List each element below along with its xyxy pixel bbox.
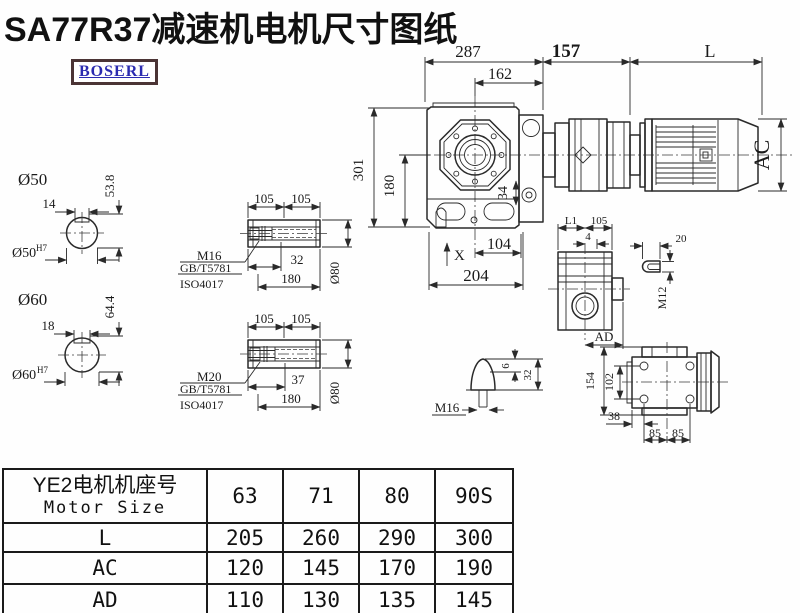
svg-text:105: 105 [254, 311, 274, 326]
cell-AD-90S: 145 [435, 584, 513, 613]
dim-53-8: 53.8 [89, 175, 123, 262]
svg-text:180: 180 [281, 271, 301, 286]
thread-callout-m16: M16 GB/T5781 ISO4017 [178, 241, 259, 291]
dim-L: L [630, 41, 762, 115]
svg-text:ISO4017: ISO4017 [180, 277, 223, 291]
cell-AD-71: 130 [283, 584, 359, 613]
svg-text:L: L [705, 41, 716, 61]
gearbox-front-view [427, 103, 543, 228]
svg-text:Ø60: Ø60 [18, 290, 47, 309]
dim-bore-50H7: Ø50 H7 [12, 243, 119, 264]
svg-text:53.8: 53.8 [102, 175, 117, 198]
svg-text:Ø50: Ø50 [18, 170, 47, 189]
svg-text:105: 105 [254, 191, 274, 206]
dim-64-4: 64.4 [90, 295, 123, 386]
table-row: L 205 260 290 300 [3, 523, 513, 552]
cell-AD-63: 110 [207, 584, 283, 613]
dim-34: 34 [496, 181, 516, 205]
cell-L-90S: 300 [435, 523, 513, 552]
svg-text:301: 301 [351, 159, 367, 182]
gearbox-side-view: L1 105 4 AD [548, 215, 630, 349]
svg-text:M16: M16 [435, 400, 460, 415]
key-detail: 20 M12 [630, 233, 687, 309]
shaft-section-50: Ø50 14 53.8 [12, 170, 123, 264]
cell-L-80: 290 [359, 523, 435, 552]
row-label-AC: AC [3, 552, 207, 584]
breather-plug-detail: M16 6 32 [432, 349, 543, 415]
dim-105-105-b: 105 105 [248, 311, 320, 338]
col-63: 63 [207, 469, 283, 523]
svg-text:37: 37 [292, 372, 306, 387]
shaft-section-60: Ø60 18 64.4 [12, 290, 123, 386]
svg-text:X: X [454, 248, 465, 264]
dim-M16-plug: M16 [432, 400, 504, 415]
dim-102: 102 [602, 366, 640, 399]
col-71: 71 [283, 469, 359, 523]
dim-key-14: 14 [43, 196, 110, 219]
dim-dia80-m20: Ø80 [322, 340, 352, 404]
dim-20: 20 [630, 233, 687, 259]
table-header-motor-size: YE2电机机座号 Motor Size [3, 469, 207, 523]
svg-text:20: 20 [676, 233, 688, 245]
svg-text:287: 287 [455, 42, 481, 61]
table-header-row: YE2电机机座号 Motor Size 63 71 80 90S [3, 469, 513, 523]
dim-X-marker: X [447, 243, 465, 266]
svg-text:180: 180 [382, 175, 398, 198]
svg-text:105: 105 [291, 191, 311, 206]
svg-text:M12: M12 [655, 287, 669, 310]
cell-AC-63: 120 [207, 552, 283, 584]
dim-180-m20: 180 [258, 370, 320, 411]
svg-text:162: 162 [488, 66, 512, 83]
svg-text:32: 32 [291, 252, 304, 267]
dim-dia80-m16: Ø80 [322, 220, 352, 284]
dim-key-18: 18 [42, 318, 111, 340]
svg-text:102: 102 [602, 373, 616, 391]
svg-text:105: 105 [291, 311, 311, 326]
svg-text:85: 85 [649, 426, 661, 440]
dim-bore-60H7: Ø60 H7 [12, 365, 120, 386]
svg-text:Ø60: Ø60 [12, 368, 36, 383]
dim-AC: AC [749, 119, 787, 191]
col-80: 80 [359, 469, 435, 523]
svg-text:34: 34 [496, 186, 511, 200]
svg-text:105: 105 [591, 215, 608, 227]
dim-M12: M12 [655, 250, 674, 309]
table-row: AC 120 145 170 190 [3, 552, 513, 584]
dim-162: 162 [475, 66, 543, 96]
table-row: AD 110 130 135 145 [3, 584, 513, 613]
hollow-shaft-m16: 105 105 M16 GB/T5781 ISO4017 32 [178, 191, 352, 291]
svg-text:Ø80: Ø80 [327, 262, 342, 284]
svg-text:18: 18 [42, 318, 55, 333]
svg-text:GB/T5781: GB/T5781 [180, 261, 231, 275]
cell-AC-71: 145 [283, 552, 359, 584]
svg-text:204: 204 [463, 266, 489, 285]
dim-287: 287 [425, 42, 543, 110]
svg-text:H7: H7 [37, 365, 48, 375]
row-label-L: L [3, 523, 207, 552]
svg-text:180: 180 [281, 391, 301, 406]
col-90S: 90S [435, 469, 513, 523]
cell-AC-90S: 190 [435, 552, 513, 584]
svg-text:ISO4017: ISO4017 [180, 398, 223, 412]
dim-105-105-a: 105 105 [248, 191, 320, 218]
hollow-shaft-m20: 105 105 M20 GB/T5781 ISO4017 37 [178, 311, 352, 412]
svg-text:85: 85 [672, 426, 684, 440]
dim-301: 301 [351, 108, 430, 227]
header-cn: YE2电机机座号 [4, 473, 206, 498]
svg-text:H7: H7 [36, 243, 47, 253]
row-label-AD: AD [3, 584, 207, 613]
svg-text:AC: AC [749, 140, 774, 171]
cell-AD-80: 135 [359, 584, 435, 613]
svg-text:64.4: 64.4 [102, 295, 117, 318]
dim-180-m16: 180 [258, 249, 320, 291]
svg-text:4: 4 [585, 231, 591, 243]
svg-text:154: 154 [583, 372, 597, 390]
svg-text:Ø50: Ø50 [12, 246, 36, 261]
cell-L-63: 205 [207, 523, 283, 552]
svg-text:157: 157 [552, 41, 581, 62]
cell-L-71: 260 [283, 523, 359, 552]
dim-180-left: 180 [382, 155, 430, 227]
svg-text:AD: AD [595, 329, 614, 344]
oil-plug [436, 208, 446, 227]
drawing-sheet: SA77R37减速机电机尺寸图纸 BOSERL [0, 0, 800, 613]
dim-104: 104 [475, 234, 521, 258]
dim-157: 157 [543, 41, 630, 115]
svg-text:6: 6 [500, 363, 512, 369]
svg-text:Ø80: Ø80 [327, 382, 342, 404]
dim-4: 4 [573, 231, 609, 249]
header-en: Motor Size [4, 498, 206, 519]
svg-text:104: 104 [487, 236, 511, 253]
svg-text:GB/T5781: GB/T5781 [180, 382, 231, 396]
svg-text:38: 38 [608, 409, 620, 423]
svg-text:32: 32 [522, 370, 534, 381]
svg-text:L1: L1 [565, 215, 577, 227]
motor-dimension-table: YE2电机机座号 Motor Size 63 71 80 90S L 205 2… [2, 468, 514, 613]
svg-text:14: 14 [43, 196, 57, 211]
cell-AC-80: 170 [359, 552, 435, 584]
gearbox-rear-view: 154 102 38 85 85 [583, 342, 728, 443]
